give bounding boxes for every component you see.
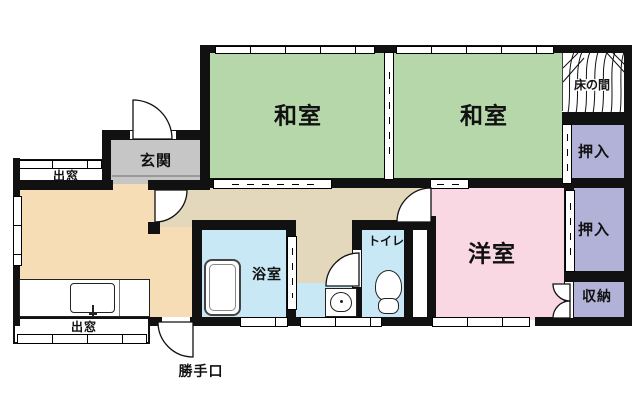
wall-segment [427, 216, 436, 326]
sliding-door-symbol [562, 124, 572, 184]
genkan-step-line [112, 175, 200, 177]
sliding-door-symbol [287, 236, 297, 310]
room-label-genkan: 玄関 [140, 154, 172, 169]
wall-segment [404, 220, 413, 326]
room-label-washitsu-2: 和室 [460, 105, 508, 128]
window-symbol [432, 317, 530, 327]
feature-label-demado-bottom: 出窓 [71, 321, 97, 333]
floor-plan: 和室 和室 洋室 玄関 浴室 トイレ 床の間 押入 押入 収納 出窓 出窓 勝手… [0, 0, 639, 405]
corridor-south [292, 225, 358, 287]
feature-label-demado-top: 出窓 [53, 170, 79, 182]
sliding-door-symbol [213, 179, 332, 189]
window-symbol [215, 46, 375, 54]
toilet-tank [378, 298, 399, 314]
window-symbol [300, 317, 382, 327]
wall-segment [564, 271, 632, 282]
wall-segment [148, 317, 162, 326]
room-label-washitsu-1: 和室 [274, 105, 322, 128]
faucet-icon [89, 313, 97, 315]
toilet-icon [375, 270, 402, 301]
sliding-door-symbol [430, 179, 469, 189]
wall-segment [535, 317, 632, 326]
door-opening [565, 282, 573, 318]
closet-label-oshiire-top: 押入 [578, 145, 610, 160]
door-opening [353, 250, 361, 287]
wall-segment [562, 112, 632, 125]
wall-segment [200, 45, 210, 187]
door-opening [162, 317, 190, 326]
room-label-tokonoma: 床の間 [573, 79, 611, 91]
room-label-bathroom: 浴室 [252, 267, 282, 281]
door-opening [130, 131, 176, 139]
window-symbol [396, 46, 554, 54]
window-symbol [17, 160, 102, 169]
tokonoma-edge-line [562, 53, 563, 111]
door-swing-arc-katteguchi [158, 322, 193, 357]
closet-label-shuno: 収納 [582, 289, 612, 303]
window-symbol [13, 196, 22, 266]
wall-segment [352, 220, 436, 230]
feature-label-katteguchi: 勝手口 [179, 364, 224, 378]
sliding-door-symbol [384, 52, 394, 180]
window-symbol [17, 334, 147, 344]
bathtub-icon [204, 259, 241, 316]
wall-segment [148, 222, 160, 234]
room-label-yoshitsu: 洋室 [468, 243, 516, 266]
wall-segment [190, 317, 242, 326]
window-symbol [240, 317, 288, 327]
wall-segment [148, 180, 210, 190]
washbasin-icon [325, 288, 357, 317]
counter-divider-line [119, 280, 120, 316]
closet-label-oshiire-mid: 押入 [578, 223, 610, 238]
wall-segment [192, 220, 296, 230]
room-label-toilet: トイレ [368, 235, 404, 247]
sliding-door-symbol [565, 190, 575, 272]
wall-segment [192, 220, 202, 326]
